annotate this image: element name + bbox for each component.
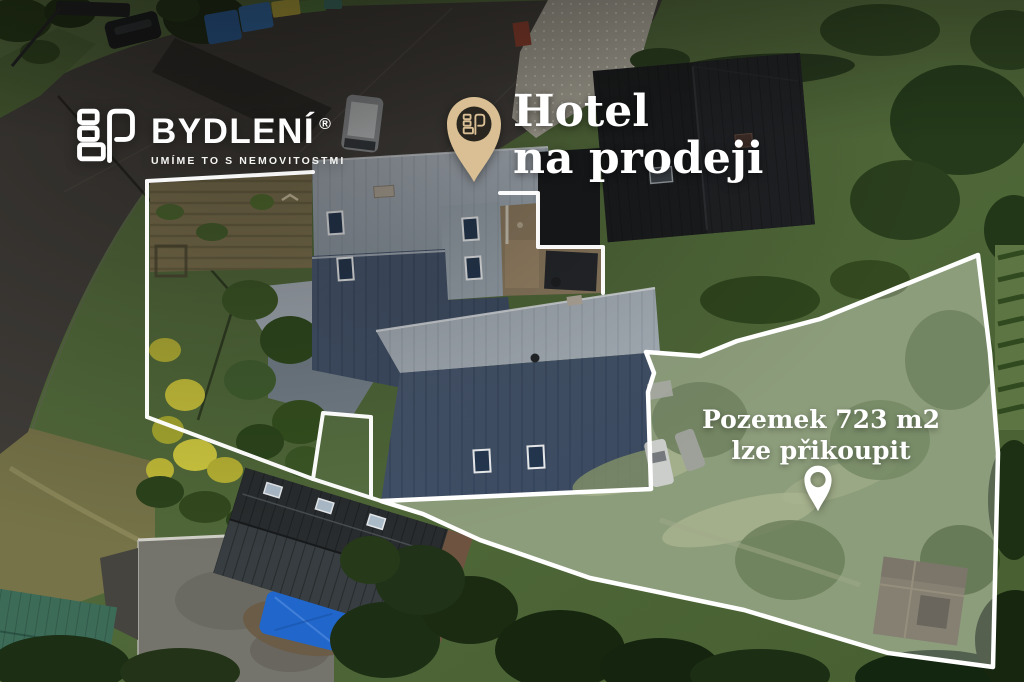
brand-name: BYDLENÍ®	[151, 106, 345, 151]
brand-text: BYDLENÍ® UMÍME TO S NEMOVITOSTMI	[151, 106, 345, 167]
land-parcel-label: Pozemek 723 m2 lze přikoupit	[695, 404, 947, 466]
brand-tagline: UMÍME TO S NEMOVITOSTMI	[151, 155, 345, 167]
bydleni-monogram-icon	[76, 106, 136, 164]
brand-logo: BYDLENÍ® UMÍME TO S NEMOVITOSTMI	[76, 106, 345, 167]
listing-title-line2: na prodeji	[513, 135, 764, 182]
registered-mark: ®	[319, 116, 331, 133]
listing-title: Hotel na prodeji	[513, 88, 764, 182]
aerial-photo	[0, 0, 1024, 682]
marketing-photo: BYDLENÍ® UMÍME TO S NEMOVITOSTMI Hotel n…	[0, 0, 1024, 682]
listing-map-pin-icon	[443, 93, 505, 185]
listing-title-line1: Hotel	[513, 88, 764, 135]
land-label-line1: Pozemek 723 m2	[695, 404, 947, 435]
land-map-pin-icon	[802, 462, 834, 514]
